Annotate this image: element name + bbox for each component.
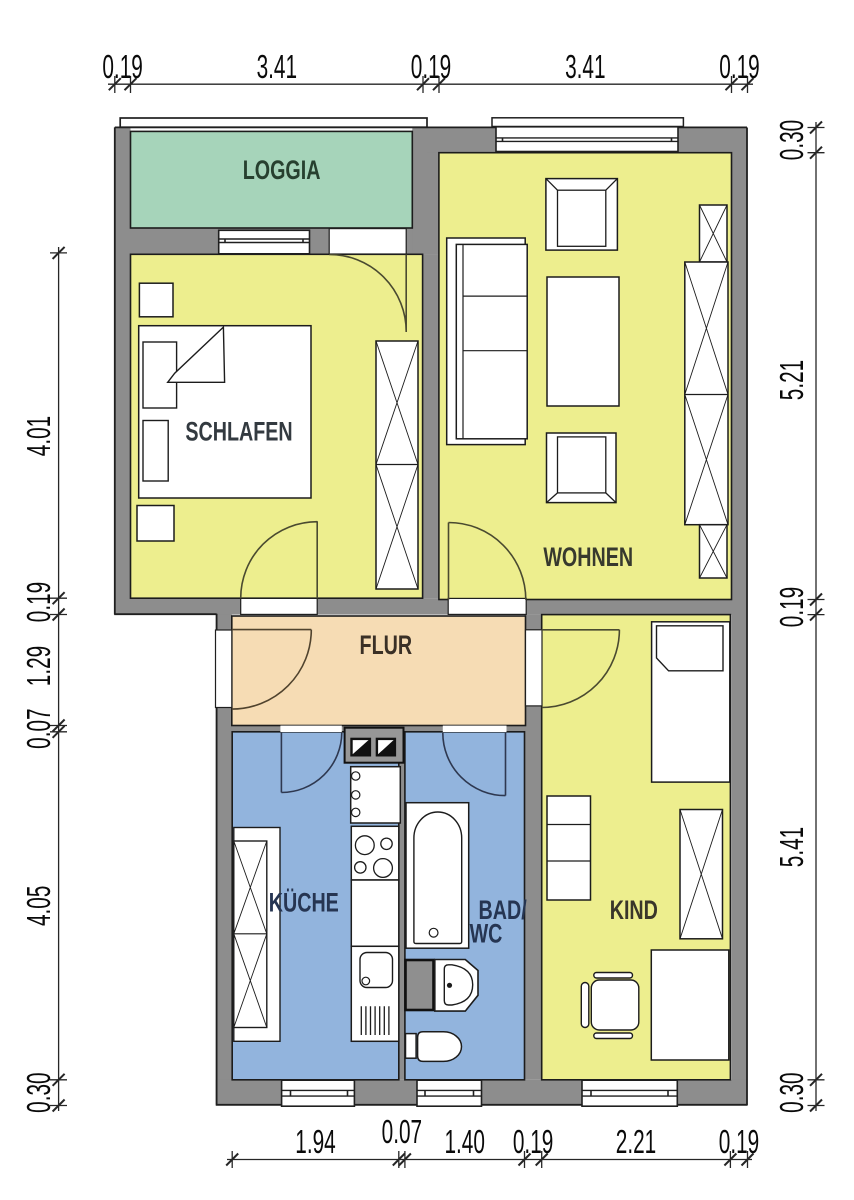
svg-text:0.19: 0.19 (102, 48, 142, 85)
svg-text:SCHLAFEN: SCHLAFEN (185, 418, 292, 448)
svg-text:LOGGIA: LOGGIA (243, 156, 321, 186)
svg-text:0.30: 0.30 (20, 1072, 57, 1112)
svg-text:4.05: 4.05 (20, 886, 57, 926)
svg-text:WC: WC (470, 920, 503, 950)
svg-text:5.41: 5.41 (773, 827, 810, 867)
svg-text:0.19: 0.19 (773, 587, 810, 627)
svg-text:2.21: 2.21 (616, 1123, 656, 1160)
svg-text:1.29: 1.29 (20, 646, 57, 686)
svg-text:1.40: 1.40 (444, 1123, 484, 1160)
svg-text:3.41: 3.41 (257, 48, 297, 85)
svg-text:0.19: 0.19 (513, 1123, 553, 1160)
svg-text:0.30: 0.30 (773, 120, 810, 160)
svg-text:1.94: 1.94 (295, 1123, 335, 1160)
svg-text:FLUR: FLUR (360, 631, 413, 661)
svg-text:0.19: 0.19 (411, 48, 451, 85)
svg-text:WOHNEN: WOHNEN (543, 543, 633, 573)
svg-text:0.19: 0.19 (719, 1123, 759, 1160)
svg-text:0.19: 0.19 (719, 48, 759, 85)
svg-text:5.21: 5.21 (773, 360, 810, 400)
svg-text:3.41: 3.41 (565, 48, 605, 85)
svg-text:KÜCHE: KÜCHE (269, 888, 339, 919)
svg-text:0.19: 0.19 (20, 582, 57, 622)
svg-text:KIND: KIND (610, 896, 658, 926)
svg-text:0.30: 0.30 (773, 1072, 810, 1112)
svg-text:0.07: 0.07 (382, 1113, 422, 1150)
svg-text:4.01: 4.01 (20, 416, 57, 456)
svg-text:0.07: 0.07 (20, 708, 57, 748)
